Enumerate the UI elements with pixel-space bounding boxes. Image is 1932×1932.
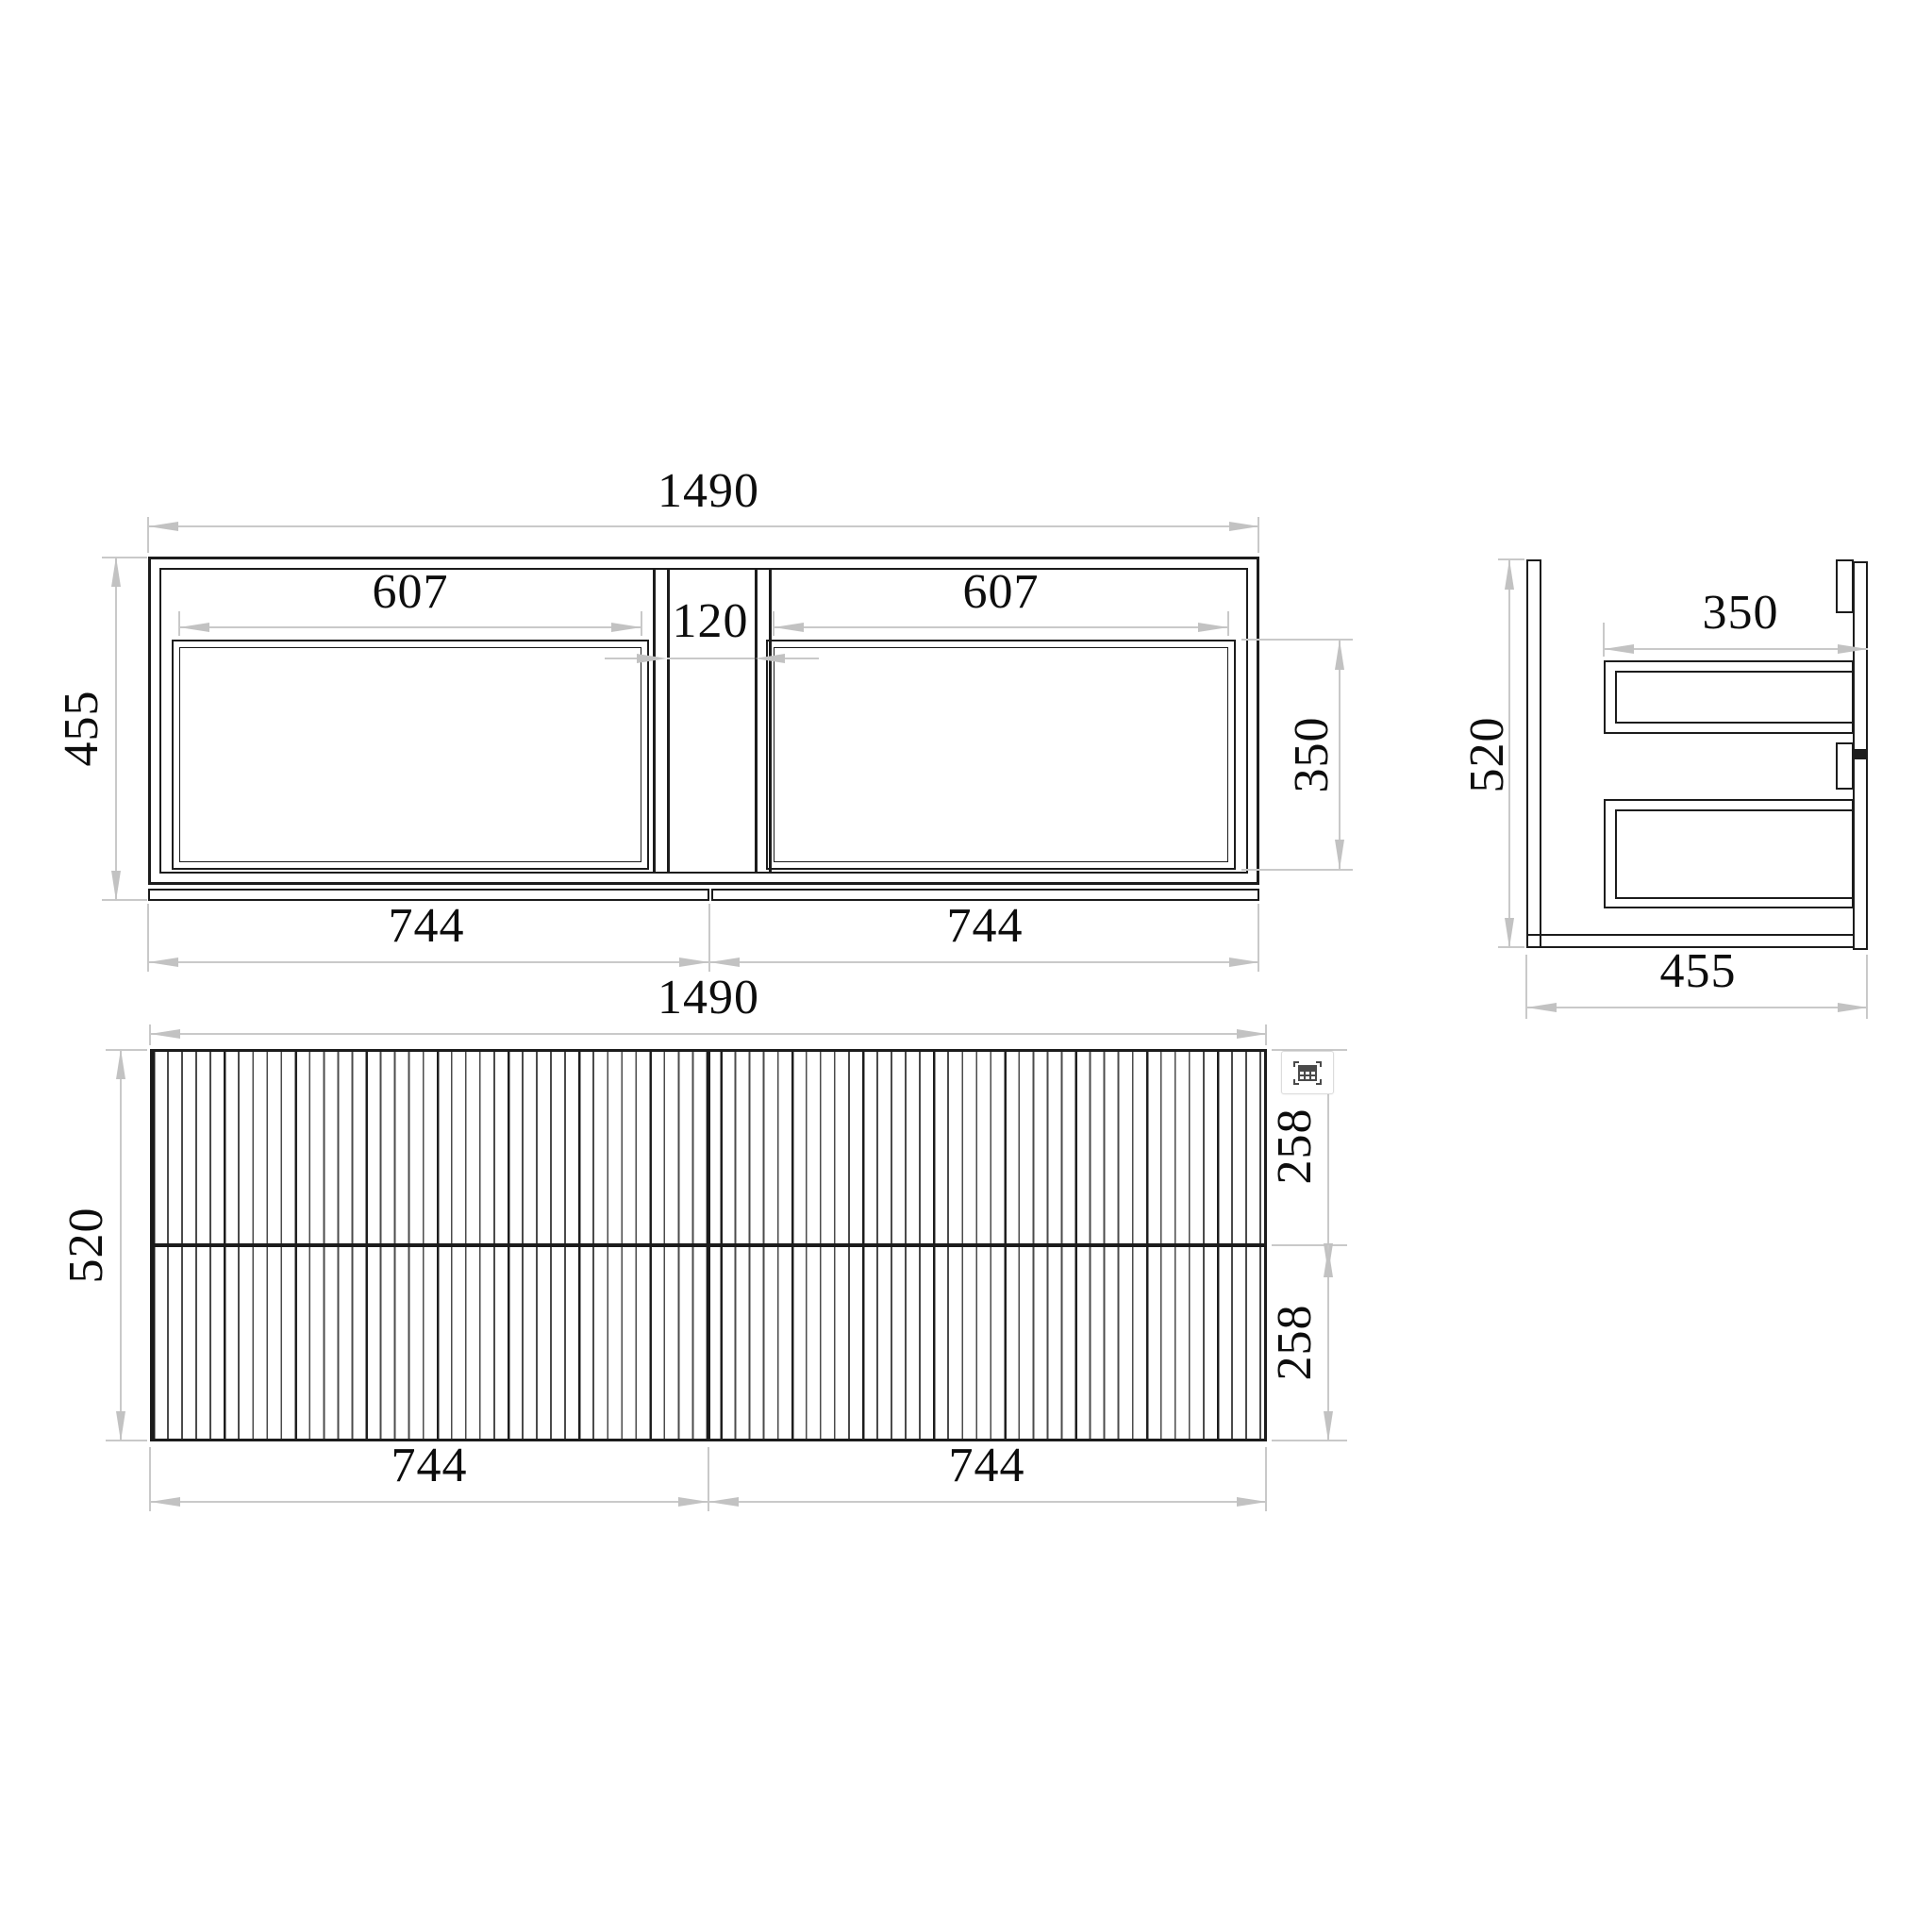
table-grid-glyph [1292, 1060, 1323, 1086]
arrowhead [148, 522, 178, 531]
side-hanging-rail-mid [1836, 742, 1854, 790]
arrowhead [1604, 644, 1634, 654]
dim-label-plan-cutout-left: 607 [373, 568, 449, 617]
arrowhead [1324, 1247, 1333, 1277]
arrowhead [1324, 1411, 1333, 1441]
arrowhead [1526, 1003, 1557, 1012]
dimension-line [148, 525, 1259, 527]
dimension-line [1526, 1007, 1868, 1008]
side-hanging-rail-top [1836, 559, 1854, 613]
plan-center-divider-line [755, 570, 758, 874]
dim-label-front-height: 520 [62, 1207, 111, 1284]
front-door-split-line [707, 1049, 710, 1441]
arrowhead [1198, 623, 1228, 632]
dim-label-side-drawer-depth: 350 [1703, 589, 1779, 638]
dimension-line [605, 658, 639, 659]
dim-label-front-upper-drawer: 258 [1271, 1108, 1320, 1185]
side-panel [1526, 559, 1541, 948]
arrowhead [637, 654, 667, 663]
plan-center-divider-line [653, 570, 656, 874]
dimension-line [150, 1033, 1267, 1035]
side-back-panel-joint [1853, 749, 1868, 759]
dim-label-plan-front-left: 744 [389, 902, 465, 951]
dim-label-plan-depth: 455 [58, 691, 107, 767]
arrowhead [1237, 1497, 1267, 1507]
extension-line [1272, 1244, 1347, 1246]
dimension-line [120, 1049, 122, 1441]
table-grid-icon[interactable] [1281, 1051, 1334, 1094]
arrowhead [679, 958, 709, 967]
dim-label-side-height: 520 [1463, 717, 1512, 793]
plan-right-cutout-inner [774, 647, 1228, 862]
arrowhead [111, 871, 121, 901]
dim-label-plan-center-gap: 120 [673, 597, 749, 646]
arrowhead [148, 958, 178, 967]
extension-line [106, 1440, 147, 1441]
extension-line [106, 1049, 147, 1051]
arrowhead [116, 1049, 125, 1079]
arrowhead [150, 1029, 180, 1039]
arrowhead [111, 557, 121, 587]
plan-left-cutout-inner [179, 647, 641, 862]
dim-label-plan-width: 1490 [658, 467, 759, 516]
dim-label-side-depth: 455 [1660, 947, 1737, 996]
arrowhead [611, 623, 641, 632]
extension-line [102, 899, 147, 901]
arrowhead [1237, 1029, 1267, 1039]
extension-line [1272, 1440, 1347, 1441]
arrowhead [1838, 1003, 1868, 1012]
arrowhead [1838, 644, 1868, 654]
arrowhead [755, 654, 785, 663]
arrowhead [1229, 958, 1259, 967]
dimension-line [785, 658, 819, 659]
arrowhead [708, 1497, 739, 1507]
dim-label-front-lower-drawer: 258 [1271, 1305, 1320, 1381]
arrowhead [179, 623, 209, 632]
arrowhead [678, 1497, 708, 1507]
dim-label-plan-front-right: 744 [947, 902, 1024, 951]
extension-line [102, 557, 147, 558]
arrowhead [1505, 918, 1514, 948]
arrowhead [150, 1497, 180, 1507]
dimension-line [115, 557, 117, 901]
side-lower-drawer-inner [1615, 809, 1854, 899]
plan-center-divider-line [667, 570, 670, 874]
side-upper-drawer-inner [1615, 671, 1854, 724]
plan-center-divider-line [769, 570, 772, 874]
dim-label-plan-cutout-depth: 350 [1288, 717, 1337, 793]
dimension-line [179, 626, 641, 628]
arrowhead [1335, 840, 1344, 870]
dim-label-front-width: 1490 [658, 974, 759, 1023]
dimension-line [667, 658, 755, 659]
dim-label-front-door-left: 744 [391, 1441, 468, 1491]
arrowhead [116, 1411, 125, 1441]
arrowhead [1229, 522, 1259, 531]
arrowhead [1335, 640, 1344, 670]
dimension-line [1604, 648, 1868, 650]
dimension-line [774, 626, 1228, 628]
arrowhead [709, 958, 740, 967]
vanity-technical-drawing: 1490 455 607 607 120 350 [0, 0, 1932, 1932]
arrowhead [774, 623, 804, 632]
dimension-line [1339, 640, 1341, 870]
dim-label-plan-cutout-right: 607 [963, 568, 1040, 617]
arrowhead [1505, 559, 1514, 590]
dim-label-front-door-right: 744 [949, 1441, 1025, 1491]
